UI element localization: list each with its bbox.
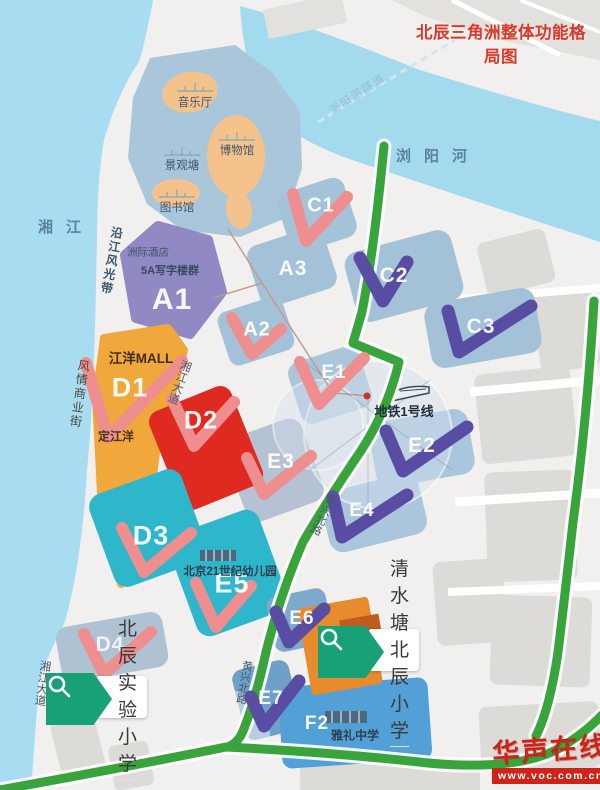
zone-label-C1: C1 <box>307 195 335 218</box>
zone-label-D3: D3 <box>133 521 170 552</box>
search-tag-label: 清水塘北辰小学 <box>390 554 409 747</box>
zone-label-E6: E6 <box>289 608 314 630</box>
mall-label: 江洋MALL <box>109 352 174 366</box>
xiang-river-label: 湘江 <box>38 220 94 236</box>
zone-A1-shape <box>125 226 222 334</box>
zone-label-C2: C2 <box>380 264 409 288</box>
zone-label-E4: E4 <box>349 500 374 522</box>
zone-label-D1: D1 <box>112 373 149 404</box>
dingjiangyang-label: 定江洋 <box>98 431 134 444</box>
base-map <box>0 0 600 790</box>
museum-label: 博物馆 <box>220 145 255 157</box>
kindergarten-label: 北京21世纪幼儿园 <box>183 566 276 578</box>
hotel-label: 洲际酒店 <box>127 247 169 258</box>
zone-label-A2: A2 <box>243 319 271 342</box>
search-tag-label: 北辰实验小学 <box>118 614 137 780</box>
zone-label-C3: C3 <box>467 315 496 339</box>
zone-label-E2: E2 <box>408 434 436 458</box>
map-canvas: 北辰三角洲整体功能格局图 湘江 浏阳河 浏阳河隧道 音乐厅 博物馆 景观塘 图书… <box>0 0 600 790</box>
zone-label-E3: E3 <box>267 450 295 474</box>
library-label: 图书馆 <box>160 202 195 214</box>
liuyang-river-label: 浏阳河 <box>396 149 480 165</box>
watermark-brand: 华声在线 <box>491 724 600 771</box>
zone-label-E1: E1 <box>321 362 346 384</box>
concert-hall-label: 音乐厅 <box>178 97 213 109</box>
watermark: 华声在线 www.voc.com.cn <box>492 728 600 784</box>
office-cluster-label: 5A写字楼群 <box>141 266 199 278</box>
watermark-url: www.voc.com.cn <box>492 768 600 784</box>
zone-label-A1: A1 <box>152 283 192 317</box>
middle-school-label: 雅礼中学 <box>331 730 379 743</box>
zone-label-A3: A3 <box>279 257 308 281</box>
metro-station-dot <box>364 393 371 400</box>
zone-label-D2: D2 <box>184 407 218 436</box>
map-title: 北辰三角洲整体功能格局图 <box>408 19 594 67</box>
metro-line-label: 地铁1号线 <box>374 405 433 419</box>
zone-label-E7: E7 <box>258 688 283 710</box>
scenic-pond-label: 景观塘 <box>165 160 200 172</box>
zone-label-F2: F2 <box>305 713 329 735</box>
